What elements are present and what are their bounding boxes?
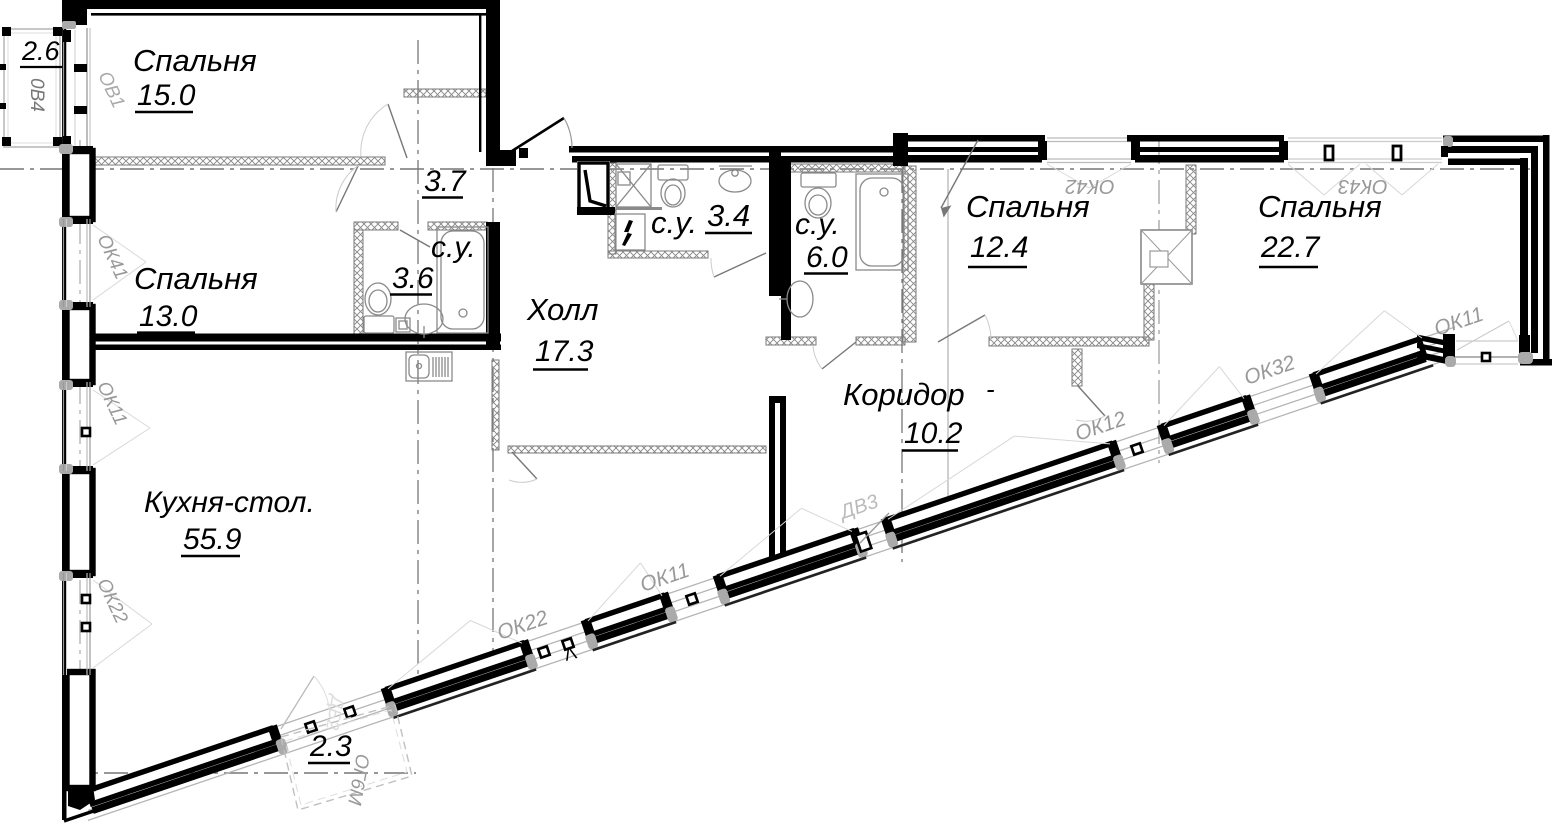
svg-text:ОК42: ОК42 xyxy=(1065,175,1115,197)
svg-text:22.7: 22.7 xyxy=(1260,231,1321,264)
svg-text:2.6: 2.6 xyxy=(21,36,61,66)
svg-text:с.у.: с.у. xyxy=(431,231,476,264)
svg-text:12.4: 12.4 xyxy=(970,231,1028,264)
svg-text:Кухня-стол.: Кухня-стол. xyxy=(144,486,315,519)
svg-text:13.0: 13.0 xyxy=(139,300,198,333)
svg-text:Коридор: Коридор xyxy=(843,377,965,412)
svg-text:-: - xyxy=(986,374,995,404)
svg-text:17.3: 17.3 xyxy=(535,335,594,368)
svg-text:6.0: 6.0 xyxy=(806,241,848,274)
svg-text:Холл: Холл xyxy=(526,292,599,327)
svg-text:с.у.: с.у. xyxy=(651,205,697,240)
svg-text:с.у.: с.у. xyxy=(795,208,840,241)
svg-text:15.0: 15.0 xyxy=(137,79,196,112)
svg-text:2.3: 2.3 xyxy=(309,730,352,763)
svg-text:Спальня: Спальня xyxy=(133,43,257,78)
svg-text:Спальня: Спальня xyxy=(134,261,258,296)
svg-text:ОК43: ОК43 xyxy=(1338,175,1388,197)
svg-text:3.7: 3.7 xyxy=(424,165,467,198)
svg-text:3.4: 3.4 xyxy=(707,198,750,233)
svg-text:3.6: 3.6 xyxy=(392,262,434,295)
svg-text:55.9: 55.9 xyxy=(183,523,242,556)
svg-text:0В4: 0В4 xyxy=(26,78,47,112)
svg-text:10.2: 10.2 xyxy=(904,417,963,450)
